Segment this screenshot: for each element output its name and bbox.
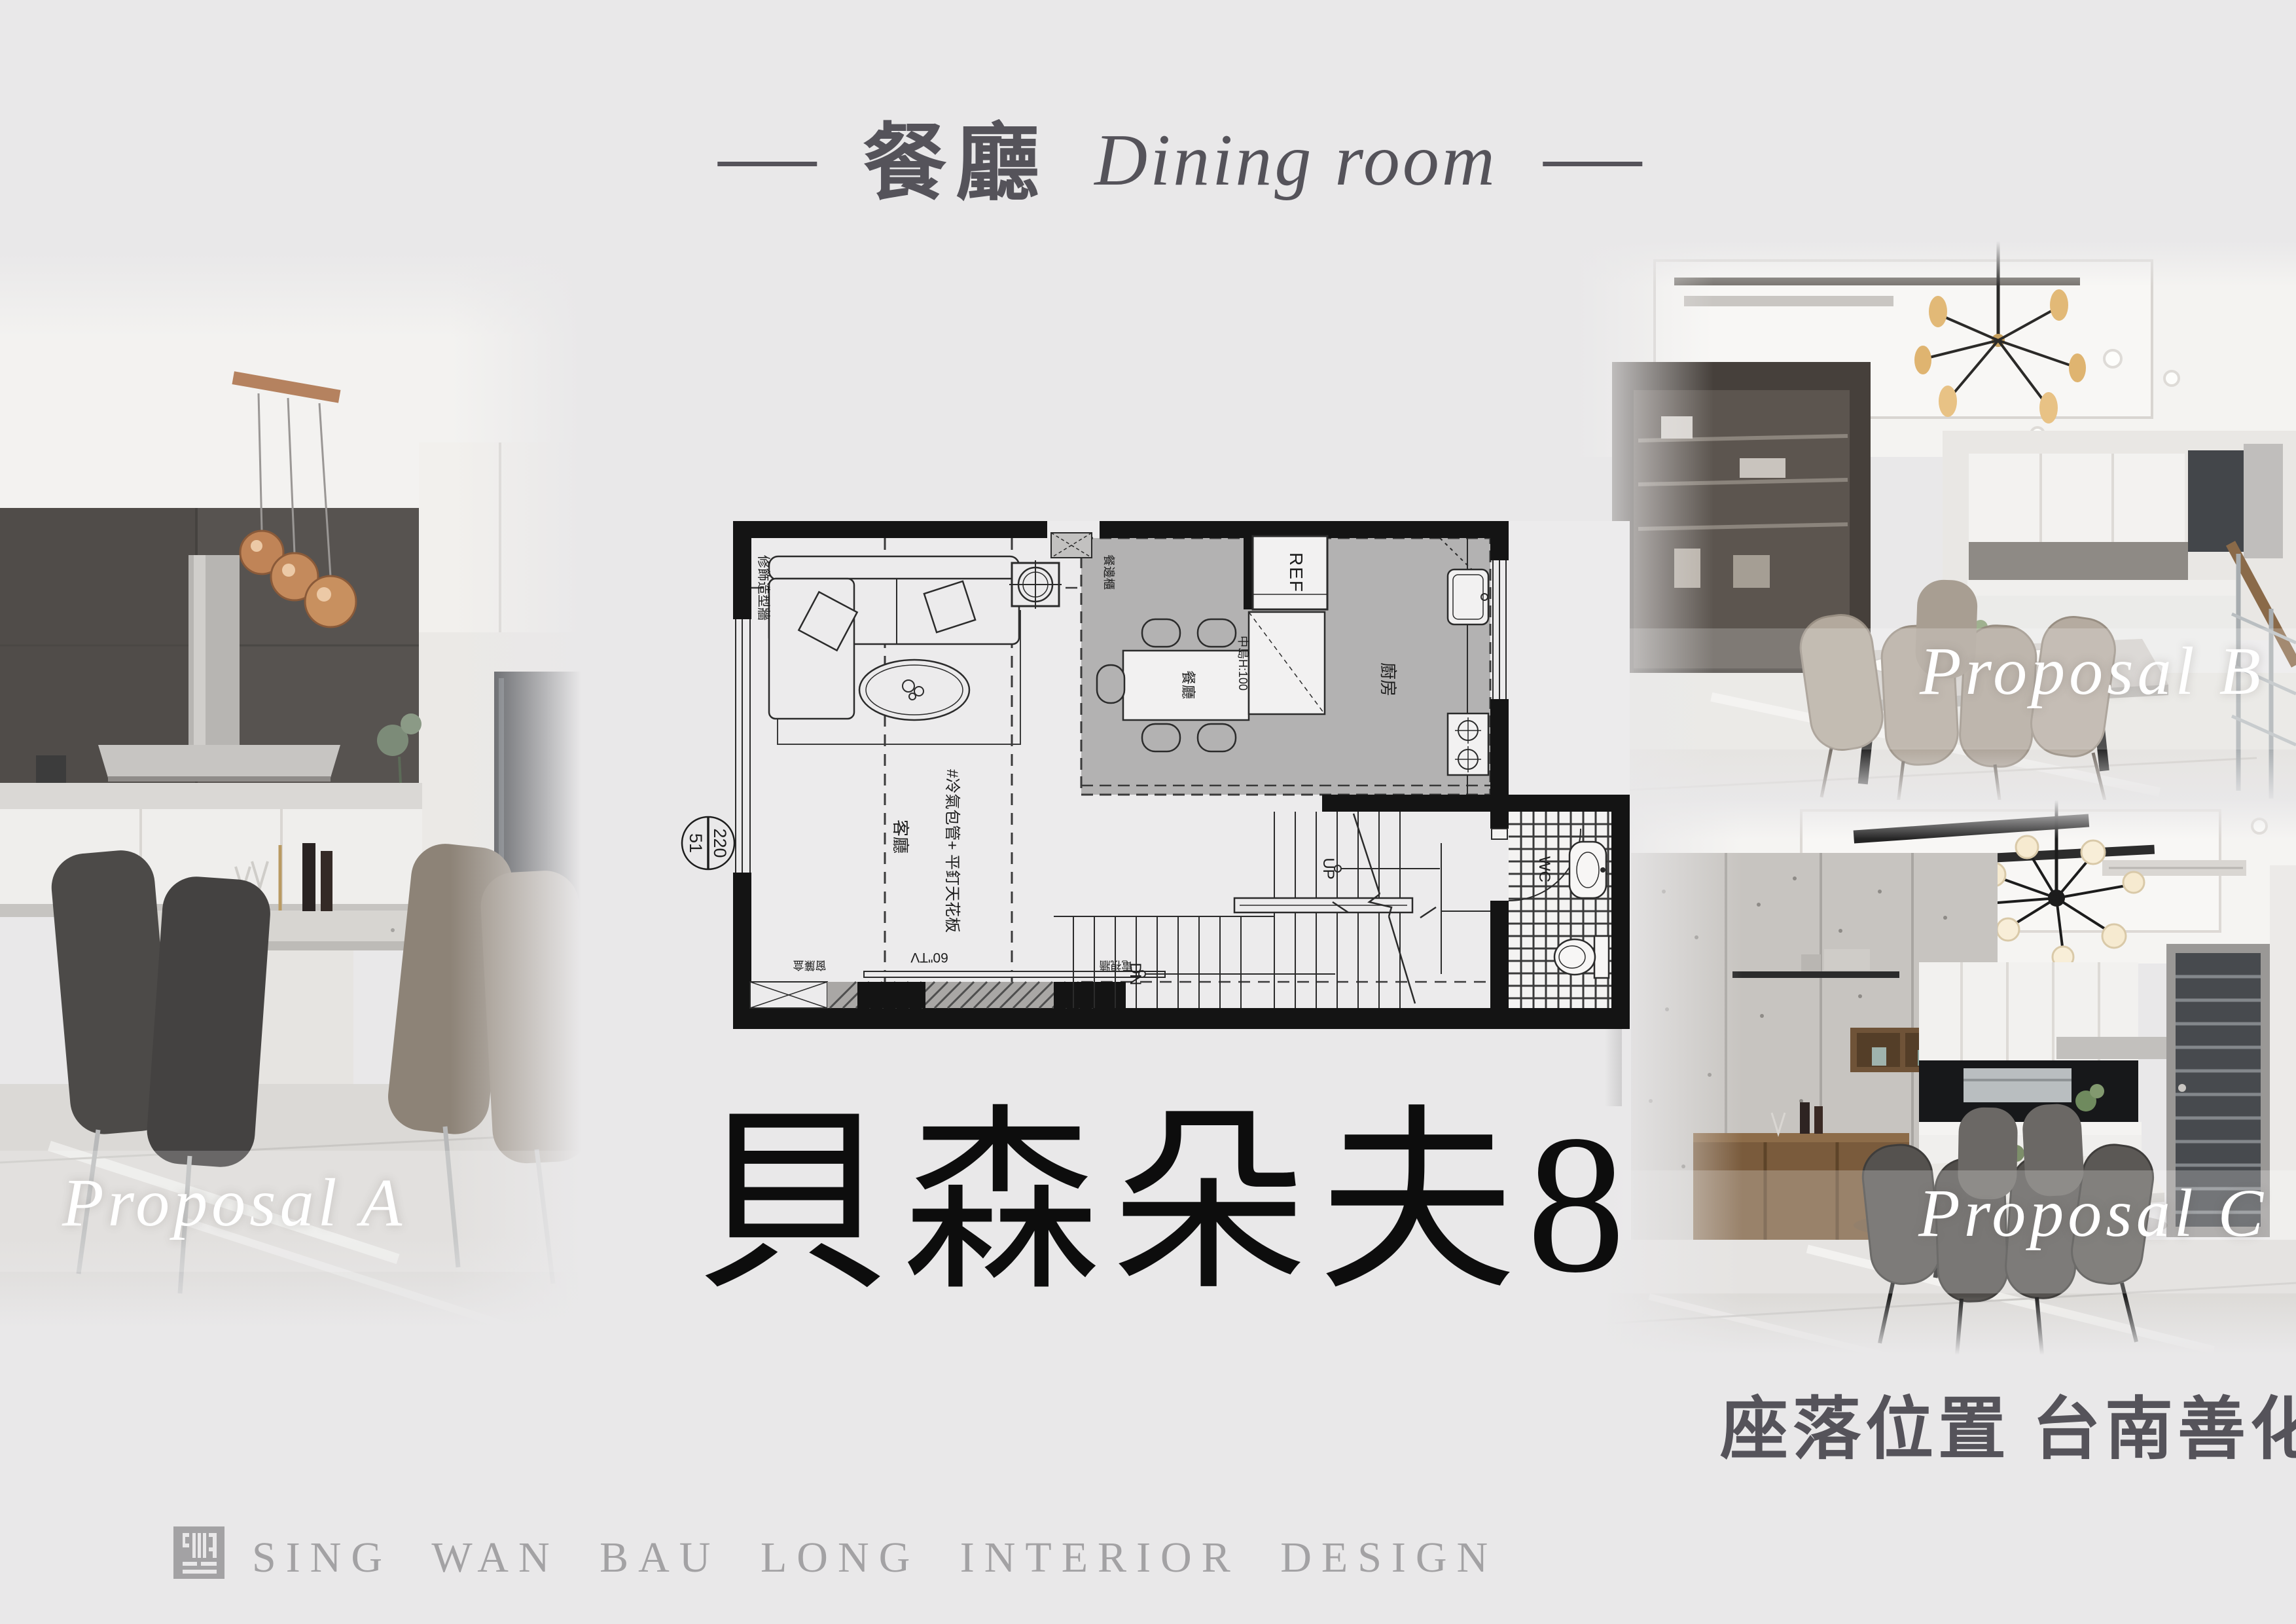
company-logo-seal — [173, 1526, 224, 1579]
company-name: SING WAN BAU LONG INTERIOR DESIGN — [252, 1526, 1498, 1583]
plan-label-dn: DN — [1126, 963, 1144, 986]
project-name: 貝森朵夫8 — [694, 1081, 1636, 1329]
page-title-zh: 餐廳 — [863, 122, 1049, 206]
elevation-top: 220 — [710, 828, 730, 857]
title-dash-right — [1543, 162, 1643, 166]
plan-label-island: 中島H:100 — [1236, 636, 1249, 691]
plan-label-kitchen: 廚房 — [1378, 662, 1398, 696]
presentation-board: { "page": { "background": "#e9e8e9", "in… — [0, 0, 2296, 1624]
floor-plan-drawing: 220 51 修飾造型牆 餐邊櫃 REF 餐廳 中島H:100 廚房 客廳 #冷… — [655, 516, 1636, 1034]
plan-label-dining-table: 餐廳 — [1180, 670, 1196, 699]
footer: SING WAN BAU LONG INTERIOR DESIGN — [173, 1526, 1498, 1583]
plan-label-ceiling-note: #冷氣包管+ 平釘天花板 — [943, 769, 961, 933]
plan-label-ref: REF — [1286, 552, 1306, 593]
floor-plan: 220 51 修飾造型牆 餐邊櫃 REF 餐廳 中島H:100 廚房 客廳 #冷… — [655, 516, 1636, 1034]
plan-label-wc: WC — [1535, 856, 1553, 882]
proposal-b-illustration — [1576, 241, 2296, 805]
proposal-c-photo — [1605, 800, 2296, 1355]
project-location: 座落位置 台南善化區 — [1720, 1373, 2296, 1472]
plan-label-curtain-box: 窗簾盒 — [793, 959, 827, 971]
plan-label-dining-cabinet: 餐邊櫃 — [1102, 554, 1115, 590]
plan-label-living: 客廳 — [891, 820, 910, 854]
proposal-b-photo — [1576, 241, 2296, 805]
elevation-bottom: 51 — [686, 833, 706, 853]
page-header: 餐廳 Dining room — [717, 122, 1642, 206]
title-dash-left — [717, 162, 817, 166]
plan-label-wall-finish: 修飾造型牆 — [756, 555, 771, 621]
plan-label-up: UP — [1319, 857, 1337, 879]
plan-label-tv: 60"TV — [910, 950, 948, 965]
page-title-en: Dining room — [1094, 124, 1497, 204]
proposal-c-label: Proposal C — [1918, 1180, 2267, 1248]
proposal-a-label: Proposal A — [62, 1169, 406, 1237]
elevation-marker: 220 51 — [682, 817, 734, 869]
proposal-b-label: Proposal B — [1920, 638, 2265, 706]
proposal-c-illustration — [1605, 800, 2296, 1355]
